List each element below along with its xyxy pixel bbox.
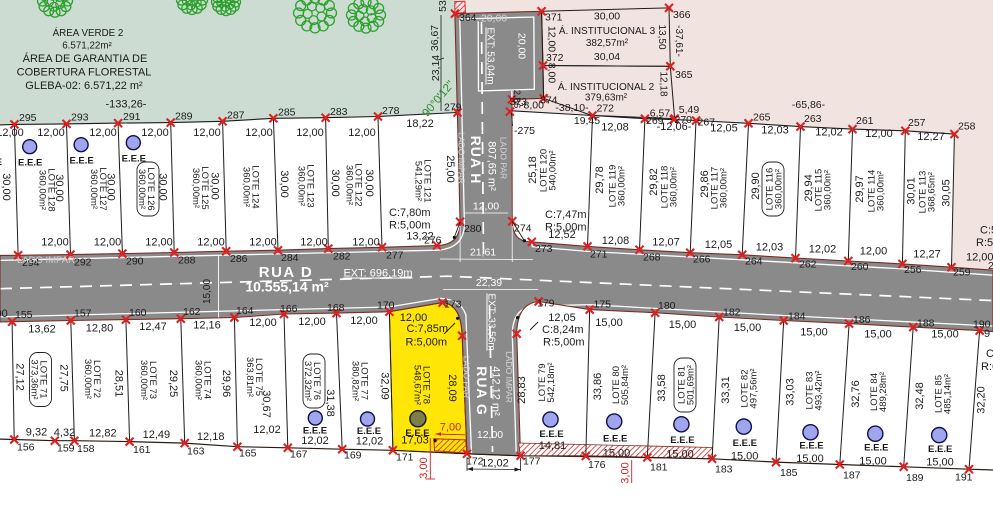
svg-text:374: 374 xyxy=(540,95,558,107)
svg-text:19,45: 19,45 xyxy=(574,115,600,127)
svg-text:371: 371 xyxy=(545,12,563,24)
svg-text:LADO PAR: LADO PAR xyxy=(462,356,472,398)
svg-text:157: 157 xyxy=(74,308,92,320)
svg-text:28,51: 28,51 xyxy=(112,370,124,398)
svg-text:30,00: 30,00 xyxy=(157,173,169,201)
svg-text:EXT: 33,56m: EXT: 33,56m xyxy=(486,293,497,350)
svg-text:382,57m²: 382,57m² xyxy=(586,38,629,49)
svg-text:489,28m²: 489,28m² xyxy=(878,372,889,412)
svg-text:291: 291 xyxy=(123,111,141,123)
svg-text:184: 184 xyxy=(788,311,806,323)
svg-text:53: 53 xyxy=(437,0,449,12)
svg-text:13,62: 13,62 xyxy=(28,324,56,336)
svg-text:28,09: 28,09 xyxy=(446,374,458,402)
svg-text:293: 293 xyxy=(71,112,89,124)
svg-text:12,00: 12,00 xyxy=(249,237,277,249)
svg-text:RUA G: RUA G xyxy=(474,366,490,416)
svg-text:360,00m²: 360,00m² xyxy=(876,171,887,211)
svg-text:12,27: 12,27 xyxy=(917,131,945,143)
svg-text:29,82: 29,82 xyxy=(648,168,660,196)
svg-text:12,52: 12,52 xyxy=(548,229,576,241)
svg-text:12,00: 12,00 xyxy=(0,308,8,320)
svg-text:360,00m²: 360,00m² xyxy=(344,165,355,205)
svg-text:E.E.E: E.E.E xyxy=(405,428,429,439)
svg-text:C:7,47m: C:7,47m xyxy=(545,209,587,221)
svg-text:9,32: 9,32 xyxy=(26,427,47,439)
svg-text:29,25: 29,25 xyxy=(167,370,179,398)
svg-text:COBERTURA FLORESTAL: COBERTURA FLORESTAL xyxy=(17,67,152,79)
svg-text:12,00: 12,00 xyxy=(245,127,273,139)
svg-text:15,00: 15,00 xyxy=(202,279,213,304)
svg-text:15,00: 15,00 xyxy=(734,322,762,334)
svg-text:29,97: 29,97 xyxy=(854,175,866,203)
svg-text:12,07: 12,07 xyxy=(652,237,680,249)
svg-text:501,69m²: 501,69m² xyxy=(686,365,697,405)
svg-text:365: 365 xyxy=(675,69,693,81)
svg-text:12,00: 12,00 xyxy=(41,237,69,249)
svg-text:-133,26-: -133,26- xyxy=(106,99,147,111)
svg-text:15,00: 15,00 xyxy=(595,317,623,329)
svg-text:12,00: 12,00 xyxy=(296,127,324,139)
svg-text:12,02: 12,02 xyxy=(809,244,837,256)
svg-text:175: 175 xyxy=(594,299,612,311)
svg-text:548,67m²: 548,67m² xyxy=(412,365,423,405)
svg-text:289: 289 xyxy=(175,111,193,123)
svg-text:LADO IMPAR: LADO IMPAR xyxy=(504,351,514,403)
svg-text:E.E.E: E.E.E xyxy=(18,158,42,169)
svg-text:285: 285 xyxy=(278,107,296,119)
svg-text:12,18: 12,18 xyxy=(197,431,225,443)
svg-text:156: 156 xyxy=(17,442,35,454)
svg-text:12,00: 12,00 xyxy=(249,317,277,329)
svg-text:ÁREA VERDE 2: ÁREA VERDE 2 xyxy=(53,28,124,39)
svg-text:E.E.E: E.E.E xyxy=(539,429,563,440)
svg-text:33,31: 33,31 xyxy=(720,376,732,404)
svg-text:295: 295 xyxy=(19,112,37,124)
svg-text:169: 169 xyxy=(344,450,362,462)
svg-text:540,00m²: 540,00m² xyxy=(548,150,559,190)
svg-text:EXT: 696,19m: EXT: 696,19m xyxy=(343,268,412,280)
svg-text:15,00: 15,00 xyxy=(800,327,828,339)
svg-text:12,05: 12,05 xyxy=(548,312,576,324)
svg-text:177: 177 xyxy=(523,456,541,468)
svg-text:360,00m²: 360,00m² xyxy=(241,167,252,207)
svg-text:161: 161 xyxy=(133,444,151,456)
svg-text:12,00: 12,00 xyxy=(141,127,169,139)
svg-text:Á. INSTITUCIONAL 3: Á. INSTITUCIONAL 3 xyxy=(559,24,656,37)
svg-text:168: 168 xyxy=(327,302,345,314)
svg-text:292: 292 xyxy=(74,257,92,269)
svg-text:360,00m²: 360,00m² xyxy=(774,169,785,209)
svg-text:360,00m²: 360,00m² xyxy=(669,167,680,207)
svg-text:360,00m²: 360,00m² xyxy=(617,166,628,206)
svg-text:32,09: 32,09 xyxy=(378,372,390,400)
svg-text:173: 173 xyxy=(444,299,462,311)
svg-text:12,02: 12,02 xyxy=(253,424,281,436)
svg-text:279: 279 xyxy=(444,102,462,114)
svg-text:12,47: 12,47 xyxy=(139,321,167,333)
svg-text:33,58: 33,58 xyxy=(656,374,668,402)
svg-text:15,00: 15,00 xyxy=(796,453,824,465)
svg-text:E.E.E: E.E.E xyxy=(670,435,694,446)
svg-text:176: 176 xyxy=(588,459,606,471)
svg-text:12,02: 12,02 xyxy=(356,436,384,448)
svg-text:258: 258 xyxy=(958,121,976,133)
svg-text:189: 189 xyxy=(906,472,924,484)
svg-text:290: 290 xyxy=(126,256,144,268)
svg-text:15,00: 15,00 xyxy=(926,457,954,469)
svg-text:12,00: 12,00 xyxy=(37,127,65,139)
svg-text:13,22: 13,22 xyxy=(406,231,434,243)
svg-text:159: 159 xyxy=(57,443,75,455)
svg-text:380,82m²: 380,82m² xyxy=(350,361,361,401)
svg-text:LADO PAR: LADO PAR xyxy=(499,137,509,179)
svg-text:-65,86-: -65,86- xyxy=(792,99,826,111)
svg-text:12,00: 12,00 xyxy=(0,127,24,139)
svg-text:165: 165 xyxy=(239,448,257,460)
svg-text:20,00: 20,00 xyxy=(481,13,507,25)
svg-text:32,20: 32,20 xyxy=(976,386,988,414)
svg-text:33,03: 33,03 xyxy=(785,378,797,406)
svg-text:30,00: 30,00 xyxy=(363,169,375,197)
svg-text:360,00m²: 360,00m² xyxy=(296,166,307,206)
svg-text:807,65 m²: 807,65 m² xyxy=(486,141,498,191)
svg-text:360,00m²: 360,00m² xyxy=(37,170,48,210)
svg-text:-38,10-: -38,10- xyxy=(555,102,589,114)
svg-text:25,18: 25,18 xyxy=(527,156,539,184)
svg-text:12,00: 12,00 xyxy=(352,237,380,249)
svg-text:497,56m²: 497,56m² xyxy=(749,368,760,408)
svg-text:-37,61-: -37,61- xyxy=(673,25,684,57)
svg-text:29,90: 29,90 xyxy=(750,172,762,200)
svg-text:31,38: 31,38 xyxy=(324,389,336,417)
svg-text:264: 264 xyxy=(745,256,763,268)
svg-text:12,00: 12,00 xyxy=(348,127,376,139)
svg-text:12,08: 12,08 xyxy=(602,235,630,247)
svg-text:12,00: 12,00 xyxy=(350,315,378,327)
svg-text:162: 162 xyxy=(183,306,201,318)
svg-text:15,00: 15,00 xyxy=(603,448,631,460)
svg-text:6.571,22m²: 6.571,22m² xyxy=(62,41,112,52)
svg-text:E.E.E: E.E.E xyxy=(603,434,627,445)
svg-text:LADO IMPAR: LADO IMPAR xyxy=(457,132,467,184)
svg-text:273: 273 xyxy=(535,243,553,255)
svg-text:30,00: 30,00 xyxy=(0,173,12,201)
svg-text:28,83: 28,83 xyxy=(516,376,528,404)
svg-text:265: 265 xyxy=(753,112,771,124)
svg-text:12,02: 12,02 xyxy=(815,127,843,139)
svg-text:4,32: 4,32 xyxy=(54,427,75,439)
svg-text:164: 164 xyxy=(236,305,254,317)
svg-text:282: 282 xyxy=(333,251,351,263)
svg-text:E.E.E: E.E.E xyxy=(69,156,93,167)
svg-text:E.E.E: E.E.E xyxy=(928,444,952,455)
svg-text:541,29m²: 541,29m² xyxy=(413,161,424,201)
svg-text:372,32m²: 372,32m² xyxy=(302,361,313,401)
svg-text:27,75: 27,75 xyxy=(57,364,69,392)
svg-text:3,00: 3,00 xyxy=(620,462,632,483)
svg-text:18,22: 18,22 xyxy=(406,118,434,130)
svg-text:12,49: 12,49 xyxy=(143,429,171,441)
svg-text:25,00: 25,00 xyxy=(444,155,456,183)
svg-text:-275: -275 xyxy=(514,125,535,137)
svg-text:C:7,80m: C:7,80m xyxy=(389,207,431,219)
svg-text:262: 262 xyxy=(799,259,817,271)
svg-text:Á. INSTITUCIONAL 2: Á. INSTITUCIONAL 2 xyxy=(558,80,655,93)
svg-text:12,18: 12,18 xyxy=(658,71,669,96)
svg-text:360,00m²: 360,00m² xyxy=(193,360,204,400)
svg-text:20,00: 20,00 xyxy=(516,33,528,59)
svg-text:12,00: 12,00 xyxy=(193,127,221,139)
svg-text:185: 185 xyxy=(780,467,798,479)
svg-text:183: 183 xyxy=(715,464,733,476)
svg-text:364: 364 xyxy=(459,12,477,24)
svg-text:12,03: 12,03 xyxy=(761,125,789,137)
svg-text:12,00: 12,00 xyxy=(860,246,888,258)
svg-text:12,03: 12,03 xyxy=(756,242,784,254)
svg-text:30,04: 30,04 xyxy=(594,51,620,63)
svg-text:360,00m²: 360,00m² xyxy=(719,168,730,208)
svg-text:C:7,85m: C:7,85m xyxy=(407,323,449,335)
svg-text:272: 272 xyxy=(597,103,615,115)
svg-text:179: 179 xyxy=(537,298,555,310)
svg-text:271: 271 xyxy=(590,249,608,261)
svg-text:23,14: 23,14 xyxy=(430,55,442,81)
svg-text:170: 170 xyxy=(377,300,395,312)
svg-text:22,39: 22,39 xyxy=(476,277,502,289)
svg-text:30,01: 30,01 xyxy=(906,177,918,205)
svg-text:30,05: 30,05 xyxy=(941,179,953,207)
svg-text:277: 277 xyxy=(386,250,404,262)
svg-text:493,42m²: 493,42m² xyxy=(814,370,825,410)
svg-text:LADO IMPAR: LADO IMPAR xyxy=(17,255,75,266)
svg-text:15,00: 15,00 xyxy=(859,456,887,468)
svg-text:15,00: 15,00 xyxy=(669,319,697,331)
svg-text:412,12 m²: 412,12 m² xyxy=(490,366,502,416)
svg-text:2: 2 xyxy=(988,260,993,272)
svg-text:-12,06-: -12,06- xyxy=(657,121,692,133)
svg-text:27,12: 27,12 xyxy=(14,363,26,391)
svg-text:36,67: 36,67 xyxy=(429,25,441,51)
svg-text:160: 160 xyxy=(129,307,147,319)
svg-text:12,80: 12,80 xyxy=(86,323,114,335)
svg-text:32,48: 32,48 xyxy=(914,382,926,410)
svg-text:30,00: 30,00 xyxy=(329,169,341,197)
svg-text:12,00: 12,00 xyxy=(473,201,499,213)
svg-text:373,36m²: 373,36m² xyxy=(29,359,40,399)
svg-text:12,00: 12,00 xyxy=(300,237,328,249)
svg-text:286: 286 xyxy=(230,253,248,265)
svg-text:260: 260 xyxy=(851,261,869,273)
svg-text:3,00: 3,00 xyxy=(418,457,430,478)
svg-text:12,82: 12,82 xyxy=(89,427,117,439)
svg-text:15,00: 15,00 xyxy=(666,449,694,461)
svg-text:C: C xyxy=(986,348,993,360)
svg-text:266: 266 xyxy=(693,254,711,266)
svg-text:E.E.E: E.E.E xyxy=(733,438,757,449)
svg-text:14,81: 14,81 xyxy=(539,440,567,452)
svg-text:GLEBA-02: 6.571,22 m²: GLEBA-02: 6.571,22 m² xyxy=(25,80,143,92)
svg-text:360,00m²: 360,00m² xyxy=(190,168,201,208)
svg-text:366: 366 xyxy=(673,9,691,21)
svg-text:186: 186 xyxy=(853,314,871,326)
svg-text:E.E.E: E.E.E xyxy=(357,426,381,437)
svg-text:12,08: 12,08 xyxy=(601,122,629,134)
svg-text:12,16: 12,16 xyxy=(193,320,221,332)
svg-text:263: 263 xyxy=(804,113,822,125)
svg-text:12,02: 12,02 xyxy=(301,435,329,447)
svg-text:C:8,24m: C:8,24m xyxy=(542,324,584,336)
svg-text:E.E.E: E.E.E xyxy=(864,443,888,454)
svg-text:12,00: 12,00 xyxy=(145,237,173,249)
svg-text:287: 287 xyxy=(227,110,245,122)
svg-text:257: 257 xyxy=(908,117,926,129)
svg-text:12,05: 12,05 xyxy=(710,123,738,135)
svg-text:373: 373 xyxy=(510,96,528,108)
svg-text:C:5: C:5 xyxy=(980,225,993,237)
svg-text:R:6: R:6 xyxy=(981,361,993,373)
svg-text:171: 171 xyxy=(396,452,414,464)
svg-text:166: 166 xyxy=(280,303,298,315)
svg-text:21,61: 21,61 xyxy=(470,247,496,259)
svg-text:485,14m²: 485,14m² xyxy=(943,374,954,414)
svg-text:155: 155 xyxy=(15,309,33,321)
svg-text:274: 274 xyxy=(514,223,532,235)
svg-text:360,00m²: 360,00m² xyxy=(138,360,149,400)
svg-text:E.E.E: E.E.E xyxy=(799,441,823,452)
svg-text:15,00: 15,00 xyxy=(731,451,759,463)
svg-text:32,76: 32,76 xyxy=(850,380,862,408)
svg-text:182: 182 xyxy=(723,307,741,319)
svg-text:360,00m²: 360,00m² xyxy=(136,169,147,209)
svg-text:372: 372 xyxy=(546,52,564,64)
svg-text:167: 167 xyxy=(290,449,308,461)
svg-text:15,00: 15,00 xyxy=(931,329,959,341)
svg-text:E.E.E: E.E.E xyxy=(122,154,146,165)
svg-text:191: 191 xyxy=(955,472,973,484)
svg-text:181: 181 xyxy=(650,462,668,474)
svg-text:12,00: 12,00 xyxy=(546,26,558,52)
svg-text:29,96: 29,96 xyxy=(220,370,232,398)
svg-text:30,00: 30,00 xyxy=(594,11,620,23)
svg-text:360,00m²: 360,00m² xyxy=(88,169,99,209)
svg-text:283: 283 xyxy=(330,106,348,118)
svg-text:12,02: 12,02 xyxy=(481,458,509,470)
svg-text:268: 268 xyxy=(643,252,661,264)
svg-text:ÁREA DE GARANTIA DE: ÁREA DE GARANTIA DE xyxy=(23,52,148,65)
svg-text:12,00: 12,00 xyxy=(89,127,117,139)
svg-text:12,27: 12,27 xyxy=(913,249,941,261)
svg-text:259: 259 xyxy=(953,267,971,279)
svg-text:EXT: 53,04m: EXT: 53,04m xyxy=(485,27,496,84)
svg-text:E.E.E: E.E.E xyxy=(303,426,327,437)
svg-text:360,00m²: 360,00m² xyxy=(823,170,834,210)
svg-text:30,00: 30,00 xyxy=(278,170,290,198)
svg-text:15,00: 15,00 xyxy=(864,329,892,341)
svg-text:542,18m²: 542,18m² xyxy=(546,362,557,402)
svg-text:8,00: 8,00 xyxy=(546,63,558,84)
svg-text:187: 187 xyxy=(843,470,861,482)
svg-text:12,00: 12,00 xyxy=(865,128,893,140)
svg-text:9: 9 xyxy=(984,328,990,340)
svg-text:12,00: 12,00 xyxy=(477,429,503,441)
svg-text:R:52: R:52 xyxy=(976,237,993,249)
svg-text:12,05: 12,05 xyxy=(705,239,733,251)
svg-text:E.E.E: E.E.E xyxy=(0,157,2,168)
svg-text:33,86: 33,86 xyxy=(592,373,604,401)
svg-text:7,00: 7,00 xyxy=(440,422,461,434)
svg-text:278: 278 xyxy=(382,105,400,117)
svg-text:261: 261 xyxy=(856,115,874,127)
svg-text:368,65m²: 368,65m² xyxy=(927,172,938,212)
svg-text:13,50: 13,50 xyxy=(656,24,667,49)
svg-text:12,00: 12,00 xyxy=(197,237,225,249)
svg-text:158: 158 xyxy=(77,443,95,455)
svg-text:363,81m²: 363,81m² xyxy=(244,357,255,397)
svg-text:29,78: 29,78 xyxy=(594,166,606,194)
svg-text:R:5,00m: R:5,00m xyxy=(406,337,448,349)
svg-text:12,00: 12,00 xyxy=(94,237,122,249)
svg-text:284: 284 xyxy=(281,252,299,264)
svg-text:505,84m²: 505,84m² xyxy=(620,365,631,405)
svg-text:10.555,14 m²: 10.555,14 m² xyxy=(245,279,329,295)
svg-text:280: 280 xyxy=(464,223,482,235)
svg-text:256: 256 xyxy=(904,264,922,276)
svg-text:360,00m²: 360,00m² xyxy=(82,359,93,399)
svg-text:12,00: 12,00 xyxy=(298,316,326,328)
svg-text:288: 288 xyxy=(178,255,196,267)
svg-text:163: 163 xyxy=(187,446,205,458)
svg-text:R:5,00m: R:5,00m xyxy=(543,337,585,349)
svg-text:180: 180 xyxy=(658,300,676,312)
svg-text:RUA H: RUA H xyxy=(468,136,484,185)
